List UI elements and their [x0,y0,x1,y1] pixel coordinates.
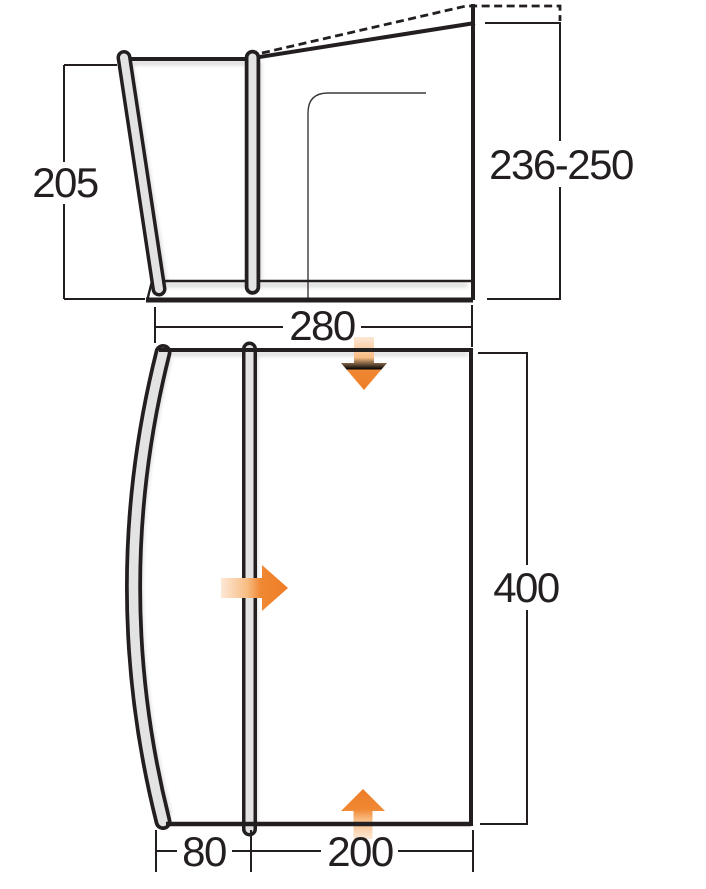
side-view-shadows [129,62,468,286]
dim-205-label: 205 [32,159,98,206]
dim-236-250-label: 236-250 [489,141,633,188]
dim-400-label: 400 [493,564,559,611]
floor-plan-shadows [139,354,468,824]
floor-plan-border [159,348,471,826]
side-ground-bar [146,279,473,300]
dim-80-label: 80 [182,828,226,875]
dimension-labels: 205 236-250 280 400 80 200 [32,141,633,875]
dim-200-label: 200 [327,828,393,875]
side-left-pole [124,58,159,290]
side-roof-extended-dashed-line [262,6,560,53]
side-inner-door-outline [308,93,426,299]
dimension-diagram: 205 236-250 280 400 80 200 [0,0,706,889]
diagram-canvas: 205 236-250 280 400 80 200 [0,0,706,889]
dim-280-label: 280 [289,302,355,349]
plan-left-curved-pole [134,353,164,822]
floor-plan-view [134,349,469,829]
